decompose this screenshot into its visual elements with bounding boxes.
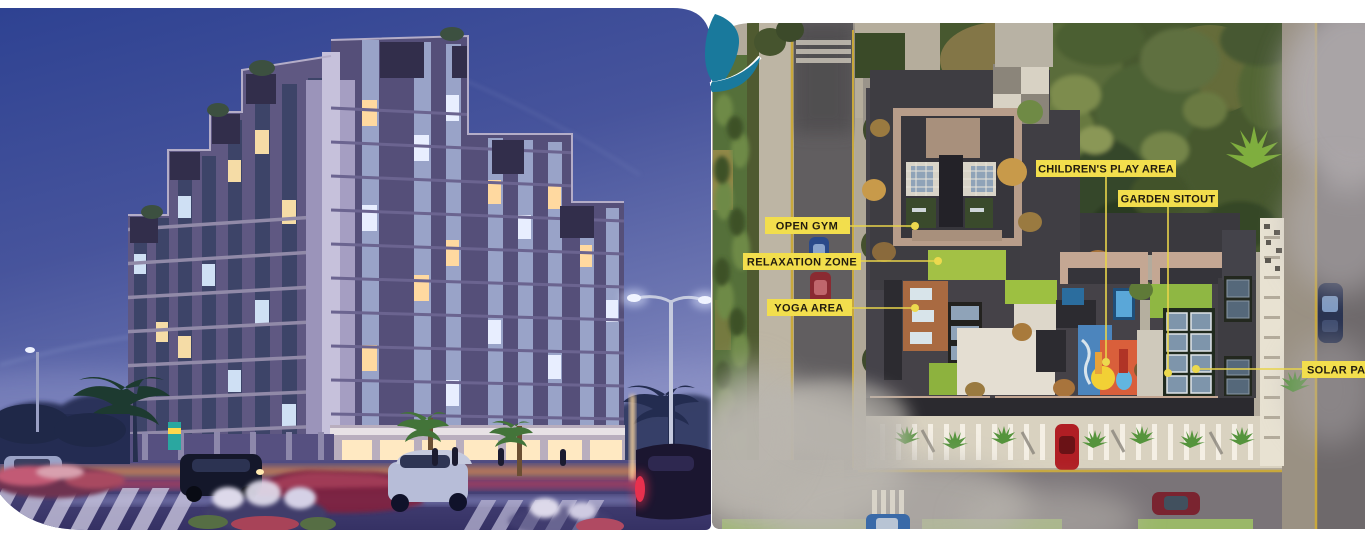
- svg-text:OPEN GYM: OPEN GYM: [776, 221, 839, 233]
- svg-text:SOLAR PANELS: SOLAR PANELS: [1307, 365, 1365, 377]
- svg-text:CHILDREN'S PLAY AREA: CHILDREN'S PLAY AREA: [1038, 164, 1174, 176]
- svg-text:GARDEN SITOUT: GARDEN SITOUT: [1121, 194, 1216, 206]
- svg-text:RELAXATION ZONE: RELAXATION ZONE: [747, 257, 857, 269]
- svg-text:YOGA AREA: YOGA AREA: [774, 303, 843, 315]
